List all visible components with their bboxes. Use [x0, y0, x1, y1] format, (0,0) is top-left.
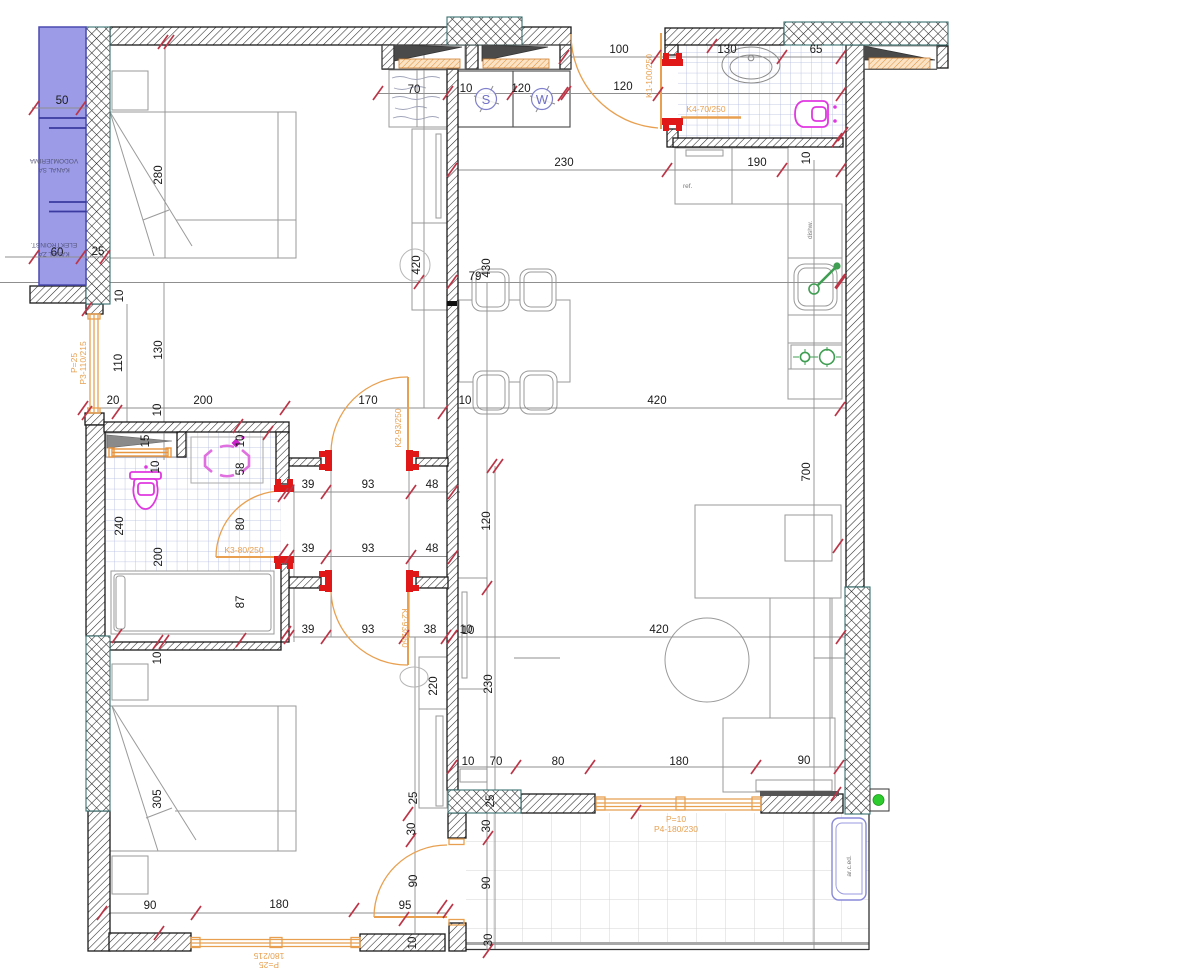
svg-text:80: 80 — [235, 518, 247, 531]
svg-text:87: 87 — [235, 596, 247, 609]
svg-text:K3-80/250: K3-80/250 — [224, 545, 263, 555]
svg-text:420: 420 — [649, 624, 668, 636]
svg-text:80: 80 — [552, 756, 565, 768]
svg-text:220: 220 — [428, 676, 440, 695]
svg-text:230: 230 — [483, 674, 495, 693]
svg-text:180: 180 — [669, 756, 688, 768]
svg-text:39: 39 — [302, 543, 315, 555]
svg-text:K2-93/250: K2-93/250 — [400, 608, 410, 647]
svg-text:240: 240 — [114, 516, 126, 535]
svg-text:S: S — [482, 92, 491, 107]
svg-text:10: 10 — [462, 625, 475, 637]
svg-text:ref.: ref. — [683, 183, 693, 190]
svg-text:10: 10 — [150, 461, 162, 474]
svg-text:305: 305 — [152, 789, 164, 808]
svg-text:93: 93 — [362, 624, 375, 636]
svg-text:10: 10 — [114, 290, 126, 303]
svg-text:190: 190 — [747, 157, 766, 169]
svg-text:180/215: 180/215 — [253, 951, 284, 961]
svg-text:100: 100 — [609, 44, 628, 56]
svg-text:10: 10 — [460, 83, 473, 95]
svg-text:30: 30 — [481, 820, 493, 833]
svg-text:90: 90 — [408, 875, 420, 888]
svg-text:P3-110/215: P3-110/215 — [78, 341, 88, 385]
svg-text:90: 90 — [144, 900, 157, 912]
svg-text:W: W — [536, 92, 549, 107]
svg-text:KANAL SA: KANAL SA — [38, 166, 70, 173]
svg-text:39: 39 — [302, 624, 315, 636]
svg-text:30: 30 — [406, 823, 418, 836]
svg-text:95: 95 — [399, 900, 412, 912]
svg-text:ar.c.ed.: ar.c.ed. — [846, 855, 853, 877]
svg-text:10: 10 — [152, 652, 164, 665]
svg-text:15: 15 — [140, 435, 152, 448]
svg-text:230: 230 — [554, 157, 573, 169]
svg-text:130: 130 — [717, 44, 736, 56]
svg-text:VODOMJERIMA: VODOMJERIMA — [29, 157, 78, 164]
svg-text:20: 20 — [107, 395, 120, 407]
svg-text:ELEKTROINST.: ELEKTROINST. — [31, 241, 77, 248]
svg-text:120: 120 — [511, 83, 530, 95]
svg-text:120: 120 — [481, 511, 493, 530]
svg-text:70: 70 — [490, 756, 503, 768]
svg-text:P=10: P=10 — [666, 814, 686, 824]
svg-text:90: 90 — [798, 755, 811, 767]
svg-text:65: 65 — [810, 44, 823, 56]
svg-text:K4-70/250: K4-70/250 — [686, 104, 725, 114]
svg-text:70: 70 — [408, 84, 421, 96]
svg-text:58: 58 — [235, 463, 247, 476]
svg-text:10: 10 — [152, 404, 164, 417]
svg-text:K1-100/250: K1-100/250 — [644, 54, 654, 98]
svg-text:39: 39 — [302, 479, 315, 491]
svg-text:KANAL ZA: KANAL ZA — [38, 250, 70, 257]
svg-text:48: 48 — [426, 543, 439, 555]
svg-text:180: 180 — [269, 899, 288, 911]
svg-text:420: 420 — [411, 255, 423, 274]
svg-text:90: 90 — [481, 877, 493, 890]
svg-text:10: 10 — [801, 152, 813, 165]
svg-text:10: 10 — [459, 395, 472, 407]
svg-text:48: 48 — [426, 479, 439, 491]
svg-text:25: 25 — [408, 792, 420, 805]
svg-text:93: 93 — [362, 543, 375, 555]
svg-text:K2-93/250: K2-93/250 — [393, 408, 403, 447]
svg-text:dishw.: dishw. — [807, 221, 814, 239]
svg-text:50: 50 — [56, 95, 69, 107]
svg-text:93: 93 — [362, 479, 375, 491]
svg-text:430: 430 — [481, 258, 493, 277]
svg-text:110: 110 — [113, 354, 125, 372]
svg-text:200: 200 — [153, 547, 165, 566]
svg-text:38: 38 — [424, 624, 437, 636]
svg-text:25: 25 — [485, 795, 497, 808]
svg-text:P=25: P=25 — [259, 960, 279, 970]
svg-text:10: 10 — [462, 756, 475, 768]
svg-text:79: 79 — [469, 271, 482, 283]
svg-text:10: 10 — [235, 435, 247, 448]
svg-text:30: 30 — [483, 934, 495, 947]
svg-text:420: 420 — [647, 395, 666, 407]
svg-text:25: 25 — [92, 246, 105, 258]
svg-text:170: 170 — [358, 395, 377, 407]
svg-text:280: 280 — [153, 165, 165, 184]
svg-text:700: 700 — [801, 462, 813, 481]
svg-text:10: 10 — [407, 937, 419, 950]
svg-text:130: 130 — [153, 340, 165, 359]
svg-text:200: 200 — [193, 395, 212, 407]
svg-text:120: 120 — [613, 81, 632, 93]
svg-text:P4-180/230: P4-180/230 — [654, 824, 698, 834]
